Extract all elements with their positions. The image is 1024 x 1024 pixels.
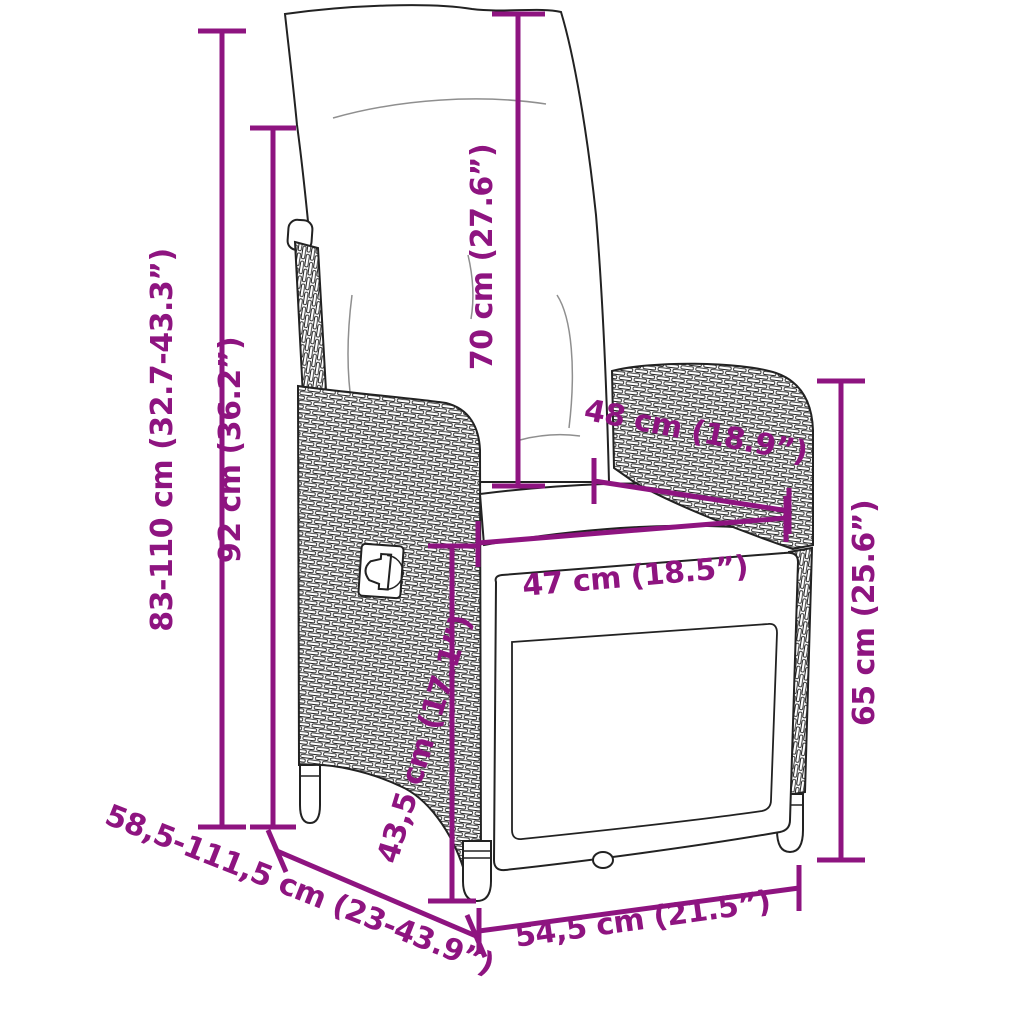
diagram-canvas: 83-110 cm (32.7-43.3”) 92 cm (36.2”) 70 … — [0, 0, 1024, 1024]
recline-handle — [358, 544, 405, 599]
dimension-label-front-width: 54,5 cm (21.5”) — [513, 884, 773, 955]
caster-knob — [593, 852, 613, 868]
dimension-backrest-height: 92 cm (36.2”) — [213, 128, 296, 827]
dimension-depth-range: 58,5-111,5 cm (23-43.9”) — [100, 798, 499, 983]
dimension-armrest-height: 65 cm (25.6”) — [817, 381, 882, 860]
dimension-diagram: 83-110 cm (32.7-43.3”) 92 cm (36.2”) 70 … — [0, 0, 1024, 1024]
dimension-label-depth-range: 58,5-111,5 cm (23-43.9”) — [100, 798, 499, 983]
dimension-front-width: 54,5 cm (21.5”) — [479, 865, 799, 955]
front-left-leg — [463, 841, 491, 901]
dimension-label-overall-height: 83-110 cm (32.7-43.3”) — [145, 248, 180, 631]
dimension-label-armrest-height: 65 cm (25.6”) — [847, 500, 882, 726]
dimension-label-back-cushion-height: 70 cm (27.6”) — [465, 144, 500, 370]
back-left-leg — [300, 763, 320, 823]
dimension-label-backrest-height: 92 cm (36.2”) — [213, 337, 248, 563]
